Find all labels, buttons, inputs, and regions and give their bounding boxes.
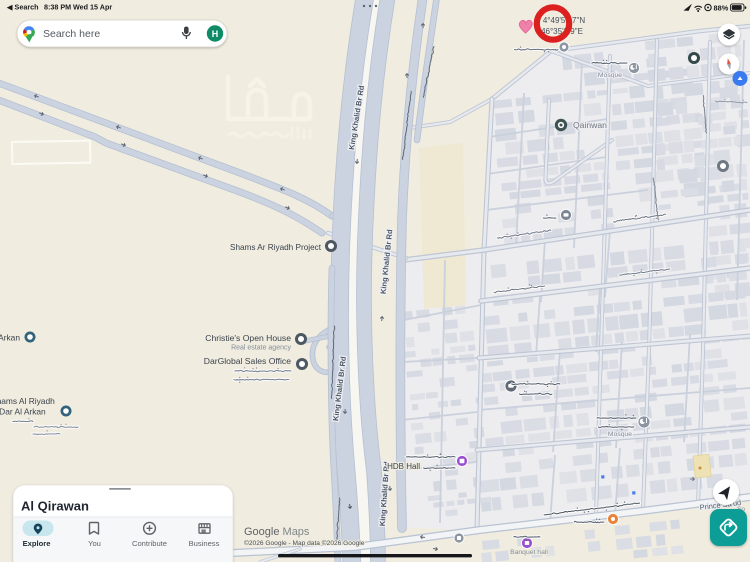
svg-text:Banquet hall: Banquet hall [510, 549, 548, 556]
svg-text:4°49'51.7"N: 4°49'51.7"N [543, 16, 585, 25]
svg-text:◀ Search: ◀ Search [6, 3, 39, 12]
svg-text:©2026 Google - Map data ©2026: ©2026 Google - Map data ©2026 Google [244, 539, 365, 547]
svg-text:Wed 15 Apr: Wed 15 Apr [73, 3, 112, 12]
svg-text:Christie's Open House: Christie's Open House [205, 333, 291, 343]
svg-text:Real estate agency: Real estate agency [231, 345, 291, 352]
svg-text:Shams Al Riyadh: Shams Al Riyadh [0, 396, 55, 406]
svg-text:H: H [212, 29, 219, 39]
svg-text:Mosque: Mosque [608, 431, 632, 438]
svg-text:Shams Ar Riyadh Project: Shams Ar Riyadh Project [230, 243, 322, 252]
svg-text:Qainwan: Qainwan [573, 120, 607, 130]
svg-text:You: You [88, 539, 101, 548]
svg-text:Search here: Search here [43, 28, 100, 40]
svg-text:Google Maps: Google Maps [244, 526, 310, 538]
svg-text:Al Qirawan: Al Qirawan [21, 499, 89, 514]
svg-text:DarGlobal Sales Office: DarGlobal Sales Office [204, 356, 291, 366]
svg-text:Contribute: Contribute [132, 539, 167, 548]
svg-text:by Dar Al Arkan: by Dar Al Arkan [0, 407, 46, 417]
svg-text:Arkan: Arkan [0, 333, 20, 343]
svg-text:8:38 PM: 8:38 PM [44, 3, 71, 12]
svg-text:Mosque: Mosque [598, 72, 622, 79]
svg-text:HDB Hall: HDB Hall [387, 462, 420, 471]
svg-text:Explore: Explore [23, 539, 51, 548]
svg-text:Business: Business [189, 539, 220, 548]
svg-text:88%: 88% [714, 3, 729, 12]
